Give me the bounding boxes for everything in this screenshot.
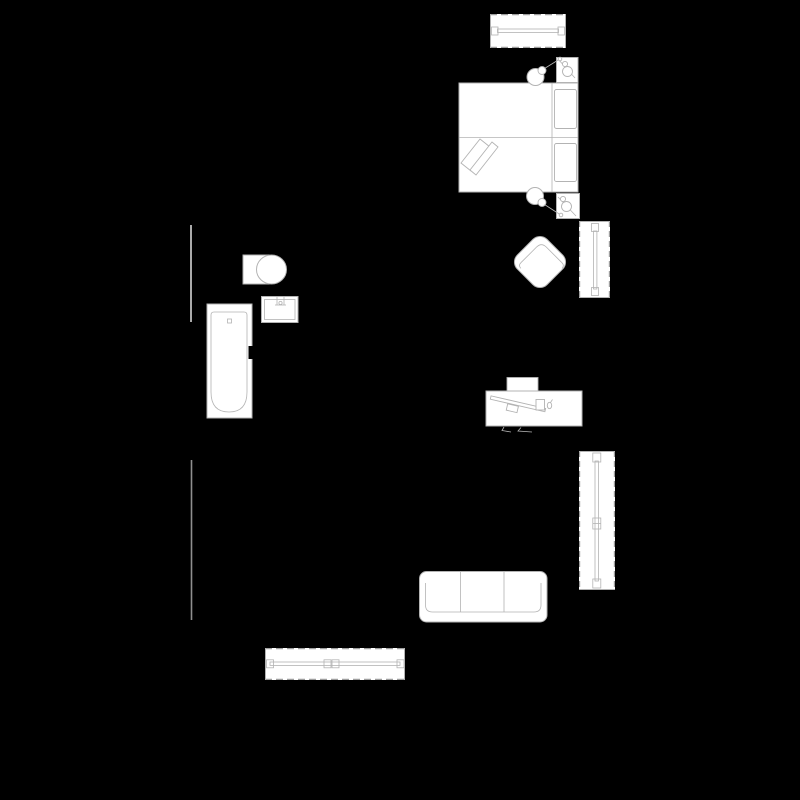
- desk[interactable]: [486, 378, 582, 433]
- lamp-arm-tip: [558, 57, 562, 61]
- bathtub-tap: [249, 346, 254, 359]
- lamp-bulb-icon: [538, 67, 546, 75]
- desk-chair: [507, 378, 538, 392]
- window-right-upper[interactable]: [579, 221, 610, 298]
- table-lamp-icon: [563, 67, 573, 77]
- toilet[interactable]: [243, 255, 287, 284]
- under-desk-cable: [518, 428, 532, 433]
- walls: [191, 225, 192, 620]
- pillow: [555, 144, 577, 182]
- sofa-outline: [420, 572, 548, 623]
- window-right-tall[interactable]: [579, 451, 615, 590]
- lamp-bulb-icon: [538, 199, 546, 207]
- sofa[interactable]: [420, 572, 548, 623]
- window-body: [579, 451, 615, 590]
- monitor-icon: [536, 400, 545, 411]
- window-body: [265, 648, 405, 680]
- table-lamp-icon: [562, 202, 572, 212]
- toilet-bowl: [257, 255, 287, 284]
- lamp-arm-tip: [559, 213, 563, 217]
- floor-plan-canvas: [0, 0, 800, 800]
- mouse-icon: [547, 402, 551, 408]
- window-bottom[interactable]: [265, 648, 405, 680]
- table-lamp-icon: [562, 61, 567, 66]
- window-body: [579, 221, 610, 298]
- window-top-body: [490, 14, 566, 48]
- pillow: [555, 90, 577, 129]
- window-top[interactable]: [490, 14, 566, 48]
- nightstand-upper[interactable]: [557, 58, 579, 83]
- double-bed[interactable]: [459, 83, 578, 192]
- armchair[interactable]: [510, 232, 569, 291]
- floor-plan-drawing: [0, 0, 800, 800]
- sink[interactable]: [262, 297, 299, 323]
- bathtub[interactable]: [207, 304, 254, 418]
- table-lamp-icon: [560, 196, 565, 201]
- bathtub-outline: [207, 304, 252, 418]
- under-desk-cable: [502, 427, 511, 432]
- sink-outline: [262, 297, 299, 323]
